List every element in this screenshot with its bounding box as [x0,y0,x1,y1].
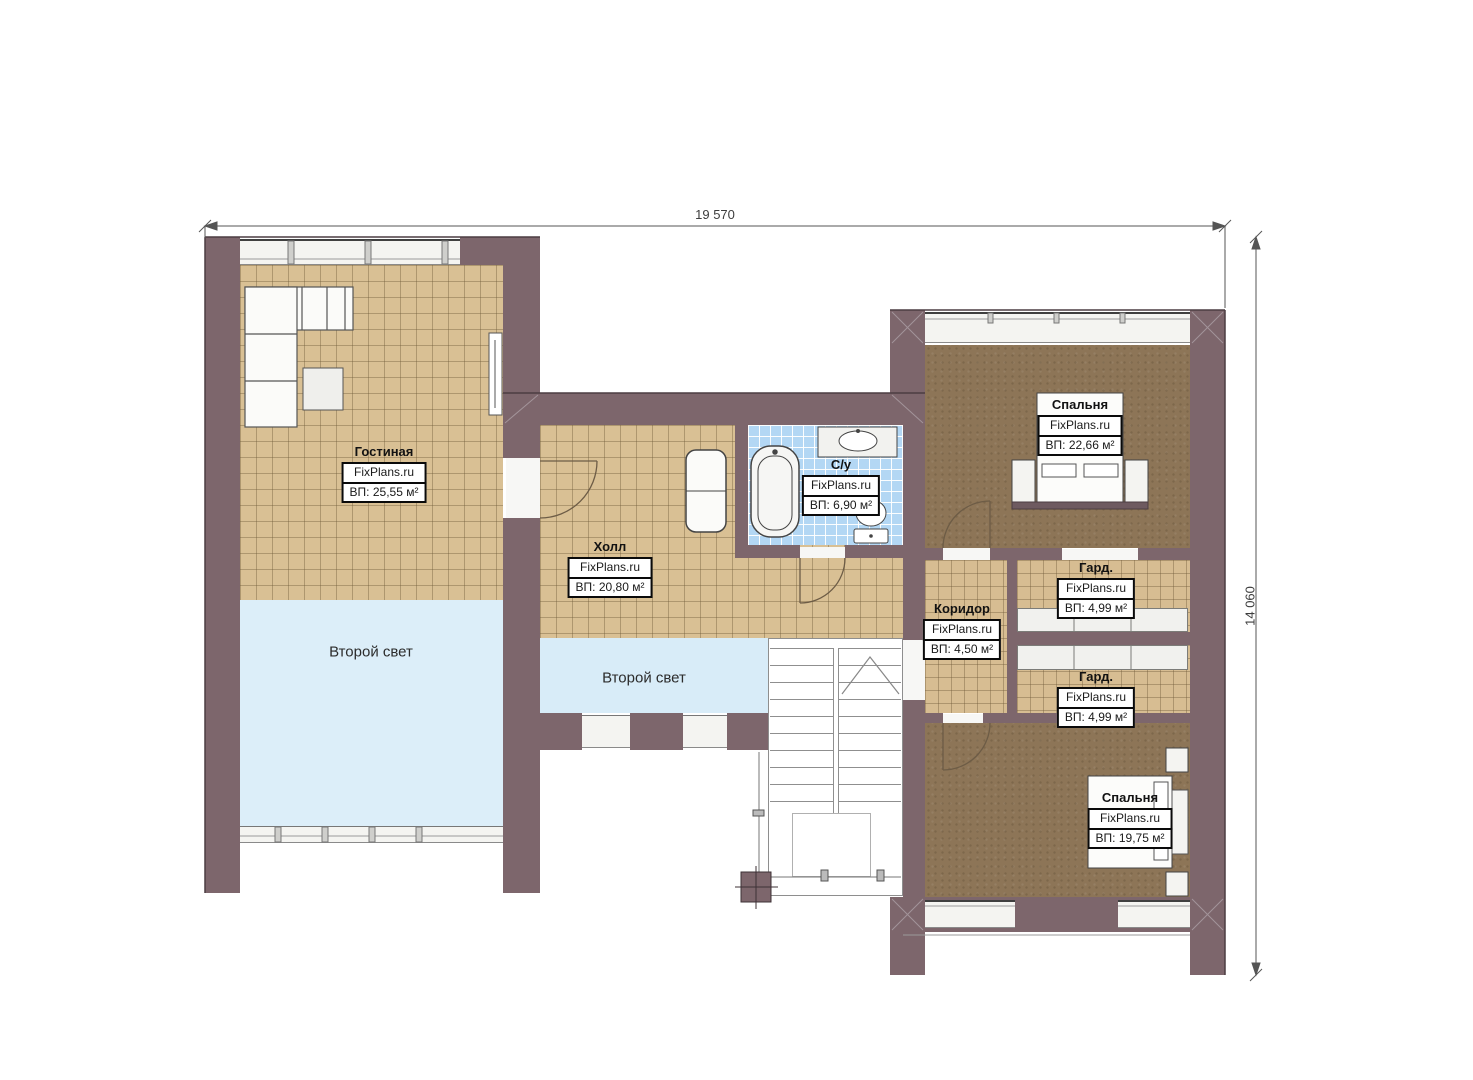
wall [890,932,925,975]
brand-box: FixPlans.ru [342,462,427,484]
door-opening [506,458,540,518]
window [925,312,1190,343]
wall [727,713,768,750]
door-opening [800,547,845,558]
area-box: ВП: 4,99 м² [1057,707,1135,729]
room-label-bedroom-top: Спальня FixPlans.ru ВП: 22,66 м² [1038,397,1123,456]
door-opening [903,640,925,700]
wall [1007,632,1190,645]
area-box: ВП: 6,90 м² [802,495,880,517]
wall [990,548,1062,560]
window [683,715,727,748]
room-name: Гард. [1057,669,1135,684]
area-box: ВП: 19,75 м² [1088,828,1173,850]
wall [903,425,925,640]
wall [1007,645,1017,713]
living-room-floor [240,265,503,600]
area-box: ВП: 4,50 м² [923,639,1001,661]
wall [903,548,943,560]
room-label-living: Гостиная FixPlans.ru ВП: 25,55 м² [342,444,427,503]
door-opening [943,714,983,723]
area-box: ВП: 22,66 м² [1038,435,1123,457]
room-name: Гостиная [342,444,427,459]
wall [1007,560,1017,632]
wall [735,425,748,545]
void-left-label: Второй свет [329,644,413,661]
window [1118,900,1190,928]
wall [503,518,540,893]
brand-box: FixPlans.ru [923,619,1001,641]
room-name: С/у [802,457,880,472]
brand-box: FixPlans.ru [1057,578,1135,600]
area-box: ВП: 20,80 м² [568,577,653,599]
wall [503,393,925,425]
void-middle-label: Второй свет [602,670,686,687]
stair-divider [833,648,839,814]
room-name: Коридор [923,601,1001,616]
door-opening [1062,549,1138,560]
wall [903,713,943,723]
void-railing-window [240,826,503,843]
floor-plan: 19 570 14 060 Гостиная FixPlans.ru ВП: 2… [0,0,1473,1080]
wall [890,310,925,425]
brand-box: FixPlans.ru [802,475,880,497]
room-name: Спальня [1088,790,1173,805]
room-label-bathroom: С/у FixPlans.ru ВП: 6,90 м² [802,457,880,516]
room-label-bedroom-bottom: Спальня FixPlans.ru ВП: 19,75 м² [1088,790,1173,849]
room-label-wardrobe-top: Гард. FixPlans.ru ВП: 4,99 м² [1057,560,1135,619]
stair-landing [792,813,871,877]
brand-box: FixPlans.ru [1057,687,1135,709]
area-box: ВП: 4,99 м² [1057,598,1135,620]
wall [540,713,582,750]
stair-flight-left [770,648,833,814]
wardrobe-bottom-shelf [1017,645,1188,670]
dimension-width-label: 19 570 [695,207,735,222]
door-opening [943,548,990,560]
wall [983,713,1060,723]
wall [1133,713,1190,723]
room-label-corridor: Коридор FixPlans.ru ВП: 4,50 м² [923,601,1001,660]
room-name: Холл [568,539,653,554]
room-label-wardrobe-bottom: Гард. FixPlans.ru ВП: 4,99 м² [1057,669,1135,728]
stair-flight-right [839,648,901,814]
wall [1190,932,1225,975]
wall [1190,310,1225,975]
room-label-hall: Холл FixPlans.ru ВП: 20,80 м² [568,539,653,598]
window [582,715,630,748]
brand-box: FixPlans.ru [1088,808,1173,830]
brand-box: FixPlans.ru [568,557,653,579]
brand-box: FixPlans.ru [1038,415,1123,437]
window [240,239,460,265]
room-name: Гард. [1057,560,1135,575]
area-box: ВП: 25,55 м² [342,482,427,504]
void-left-area [240,600,503,828]
wall [1138,548,1190,560]
room-name: Спальня [1038,397,1123,412]
window [925,900,1015,928]
wall [205,237,240,893]
dimension-height-label: 14 060 [1243,586,1258,626]
wall [630,713,683,750]
wall [735,545,800,558]
wall [845,545,903,558]
